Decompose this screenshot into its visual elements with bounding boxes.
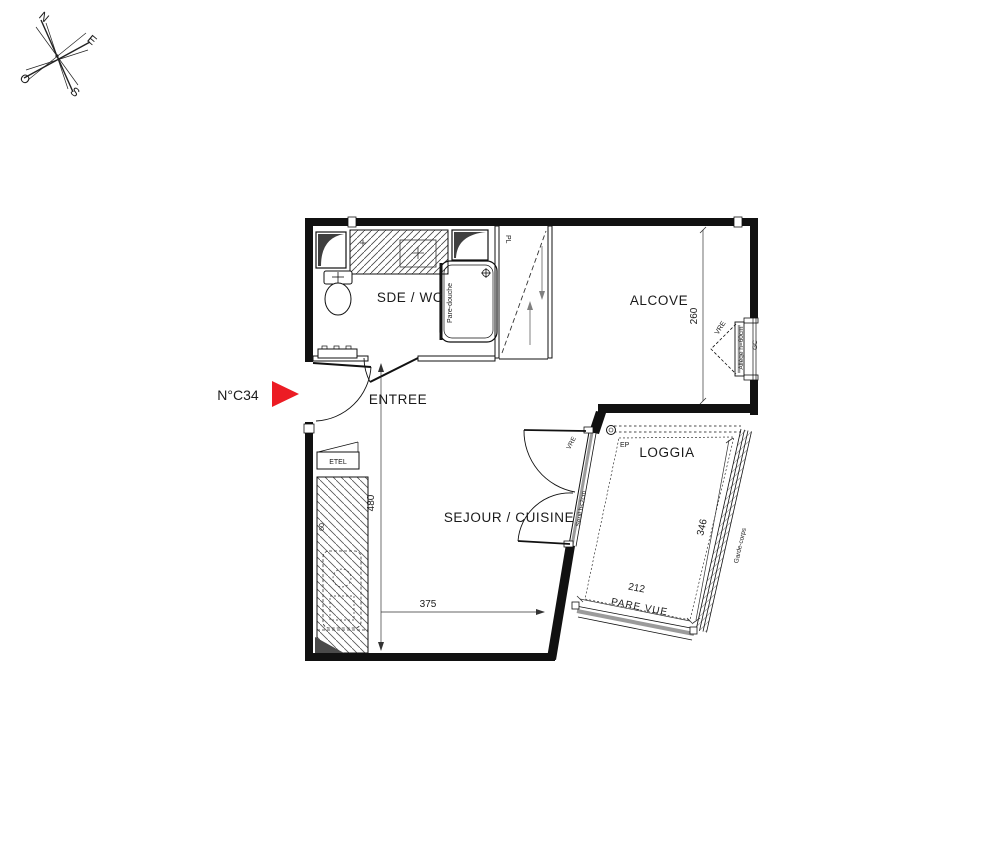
dim-375-label: 375 [420,599,437,610]
compass-west-label: O [17,71,33,88]
room-label-loggia: LOGGIA [639,445,694,460]
sill-height-label: Allège h=60cm [738,326,745,369]
compass-rose-icon: N E O S [17,9,100,100]
towel-radiator-icon [318,346,357,358]
guardrail-abbrev-label: GC [752,340,759,350]
room-label-alcove: ALCOVE [630,293,688,308]
dim-346-label: 346 [695,518,710,537]
threshold-label: Seuil h<2cm [575,490,588,527]
entrance-arrow-icon [272,381,299,407]
unit-number-label: N°C34 [217,387,259,403]
entrance-door [313,363,371,421]
shower-icon: Pare-douche [440,261,497,342]
closet-pl: PL [502,231,546,353]
dimension-alcove-depth: 260 [689,227,706,404]
corner-vent-left [316,232,346,268]
guardrail-label: Garde-corps [733,527,748,565]
etel-label: ETEL [329,459,347,466]
sejour-bay-window: VRE Seuil h<2cm [518,427,596,547]
bathroom-door [364,358,418,382]
dim-480-label: 480 [366,494,377,511]
dim-260-label: 260 [689,307,700,324]
floor-plan-canvas: N E O S N°C34 [0,0,1000,857]
alcove-window-shutter-label: VRE [714,320,728,336]
compass-north-label: N [36,9,52,25]
technical-duct [350,230,448,274]
dim-60-label: 60 [319,523,326,531]
alcove-window: VRE Allège h=60cm GC [711,318,759,380]
room-label-entree: ENTREE [369,392,427,407]
exterior-walls [305,218,758,661]
dim-212-label: 212 [627,582,646,596]
kitchen-unit: 60 [315,477,368,653]
compass-south-label: S [67,84,82,100]
floor-plan-page: N E O S N°C34 [0,0,1000,857]
toilet-icon [324,271,352,315]
room-label-sde-wc: SDE / WC [377,290,443,305]
sejour-window-shutter-label: VRE [565,435,578,451]
etel-box: ETEL [317,442,359,469]
closet-label: PL [504,235,511,244]
rainwater-pipe-label: EP [620,442,630,449]
corner-vent-right [452,230,488,260]
shower-screen-label: Pare-douche [447,283,454,323]
room-label-sejour-cuisine: SEJOUR / CUISINE [444,510,574,525]
compass-east-label: E [84,32,99,48]
